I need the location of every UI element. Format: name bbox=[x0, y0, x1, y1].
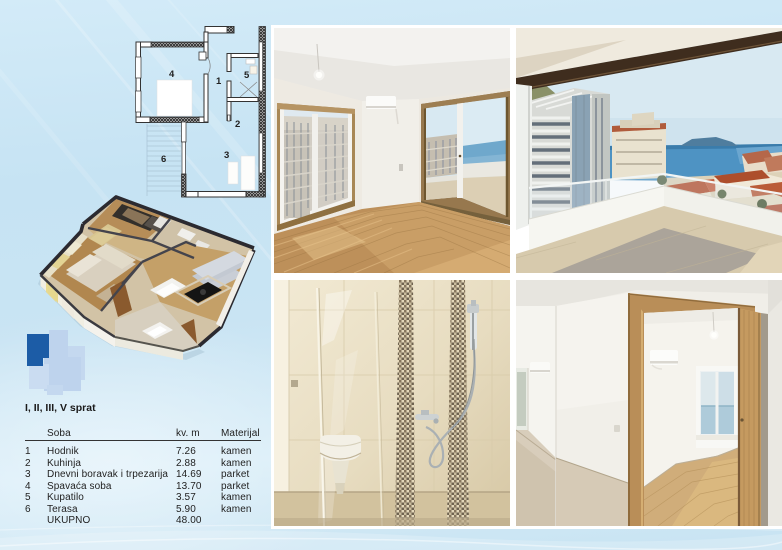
svg-text:1: 1 bbox=[216, 76, 222, 87]
svg-text:3: 3 bbox=[224, 150, 229, 161]
svg-text:4: 4 bbox=[169, 69, 175, 80]
svg-text:5: 5 bbox=[244, 70, 250, 81]
svg-text:6: 6 bbox=[161, 154, 166, 165]
svg-text:2: 2 bbox=[235, 119, 240, 130]
